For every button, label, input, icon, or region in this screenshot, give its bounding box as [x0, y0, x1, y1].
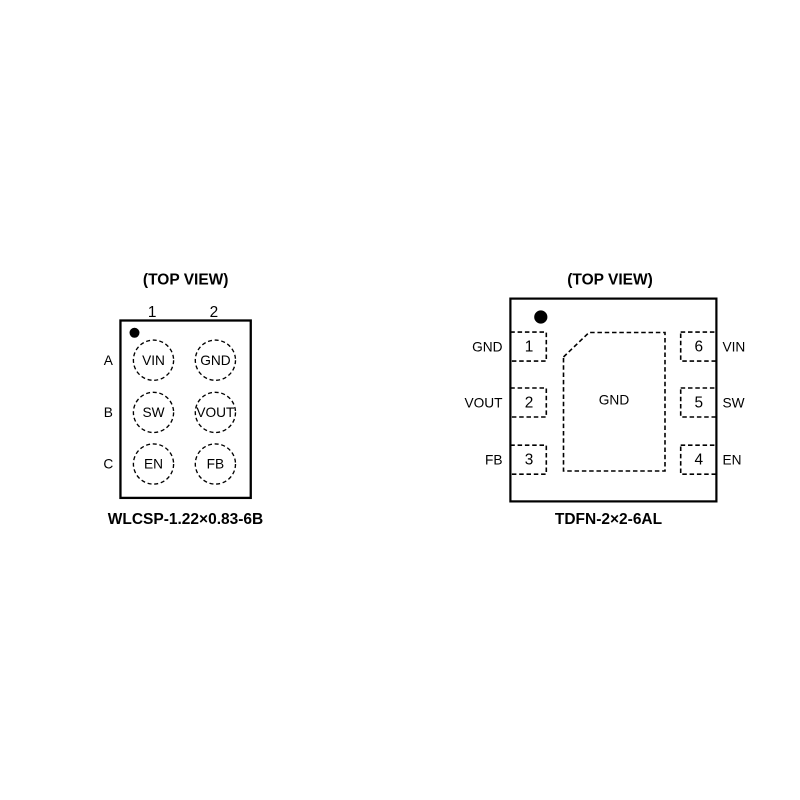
svg-text:FB: FB [485, 452, 503, 467]
svg-text:5: 5 [695, 395, 704, 412]
svg-text:VIN: VIN [723, 339, 746, 354]
svg-text:2: 2 [210, 304, 219, 321]
svg-text:EN: EN [144, 457, 163, 472]
svg-text:GND: GND [599, 393, 630, 408]
svg-text:B: B [104, 405, 113, 420]
svg-text:2: 2 [525, 395, 534, 412]
svg-text:GND: GND [200, 353, 231, 368]
svg-text:(TOP VIEW): (TOP VIEW) [143, 272, 229, 289]
svg-text:GND: GND [472, 339, 503, 354]
svg-text:6: 6 [695, 339, 704, 356]
svg-text:C: C [103, 457, 113, 472]
svg-text:FB: FB [207, 457, 225, 472]
svg-text:SW: SW [723, 395, 745, 410]
svg-text:A: A [104, 353, 114, 368]
svg-text:1: 1 [148, 304, 157, 321]
svg-text:EN: EN [723, 452, 742, 467]
svg-text:TDFN-2×2-6AL: TDFN-2×2-6AL [555, 511, 662, 528]
svg-text:3: 3 [525, 452, 534, 469]
svg-text:4: 4 [695, 452, 704, 469]
svg-text:(TOP VIEW): (TOP VIEW) [567, 272, 653, 289]
svg-text:VIN: VIN [142, 353, 165, 368]
svg-text:SW: SW [142, 405, 164, 420]
svg-text:1: 1 [525, 339, 534, 356]
svg-text:WLCSP-1.22×0.83-6B: WLCSP-1.22×0.83-6B [108, 511, 264, 528]
svg-text:VOUT: VOUT [196, 405, 235, 420]
svg-text:VOUT: VOUT [464, 395, 503, 410]
